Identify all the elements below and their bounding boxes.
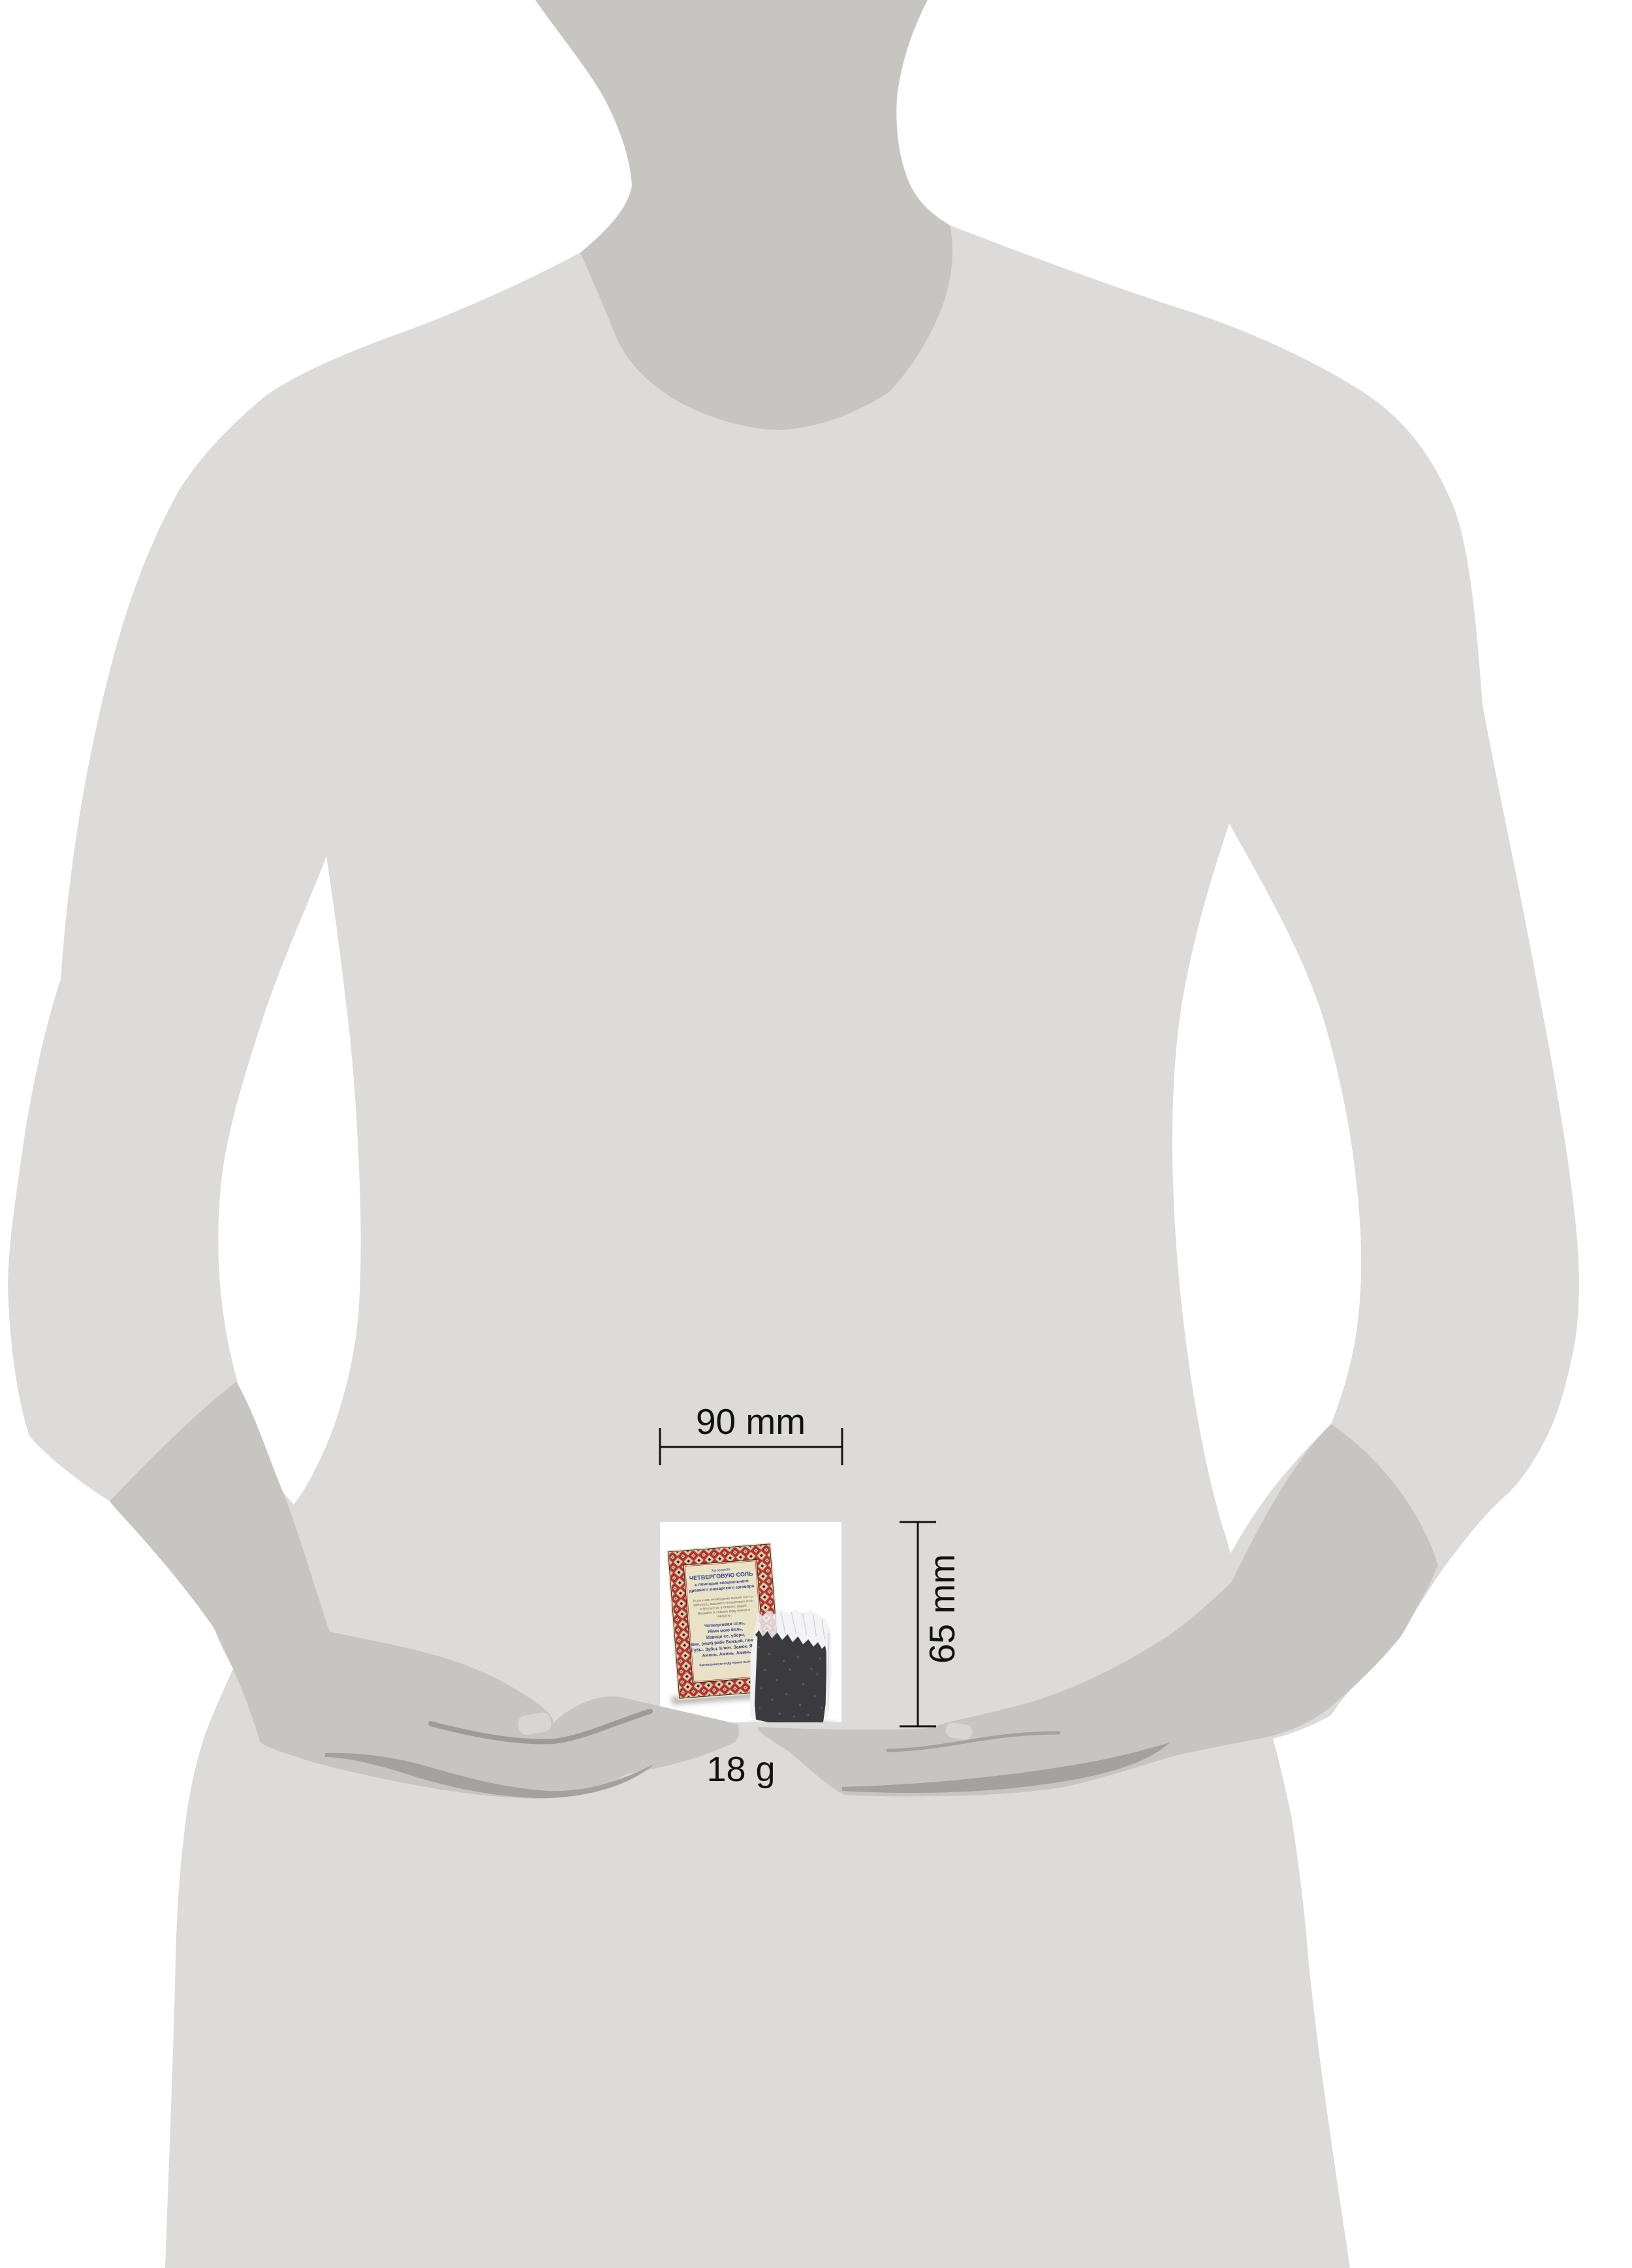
svg-text:65 mm: 65 mm: [922, 1554, 962, 1664]
svg-text:90 mm: 90 mm: [696, 1401, 806, 1442]
svg-text:18 g: 18 g: [706, 1750, 775, 1789]
